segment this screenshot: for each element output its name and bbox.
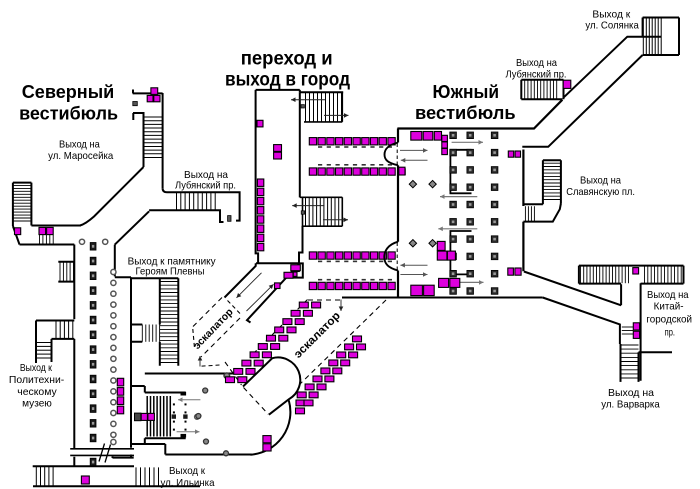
svg-text:Южный: Южный [433,81,500,102]
svg-text:ул. Ильинка: ул. Ильинка [161,478,215,489]
svg-text:Китай-: Китай- [654,302,684,313]
svg-text:Выход к: Выход к [169,466,206,477]
svg-text:Северный: Северный [22,81,115,102]
svg-text:вестибюль: вестибюль [19,103,118,124]
svg-text:Политехни-: Политехни- [9,375,64,386]
svg-text:ческому: ческому [17,387,57,398]
svg-text:Выход на: Выход на [516,58,557,69]
svg-text:Героям Плевны: Героям Плевны [136,266,205,277]
svg-text:Выход к: Выход к [20,363,53,374]
svg-text:ул. Солянка: ул. Солянка [585,21,639,32]
svg-text:Выход на: Выход на [184,170,228,181]
svg-text:переход и: переход и [241,48,333,70]
svg-text:музею: музею [22,399,52,410]
svg-text:Выход на: Выход на [647,290,689,301]
svg-text:Выход к: Выход к [592,10,630,21]
svg-text:городской: городской [646,315,692,326]
svg-text:ул. Варварка: ул. Варварка [601,400,660,411]
svg-text:Славянскую пл.: Славянскую пл. [566,187,635,198]
svg-text:Выход на: Выход на [59,140,100,151]
svg-text:ул. Маросейка: ул. Маросейка [48,151,114,162]
svg-text:Выход на: Выход на [608,388,654,399]
svg-text:вестибюль: вестибюль [415,102,516,123]
svg-text:Лубянский пр.: Лубянский пр. [506,69,567,81]
svg-text:Выход на: Выход на [580,176,621,187]
svg-text:выход в город: выход в город [225,69,351,91]
svg-text:пр.: пр. [665,328,675,339]
svg-text:Лубянский пр.: Лубянский пр. [175,179,236,191]
